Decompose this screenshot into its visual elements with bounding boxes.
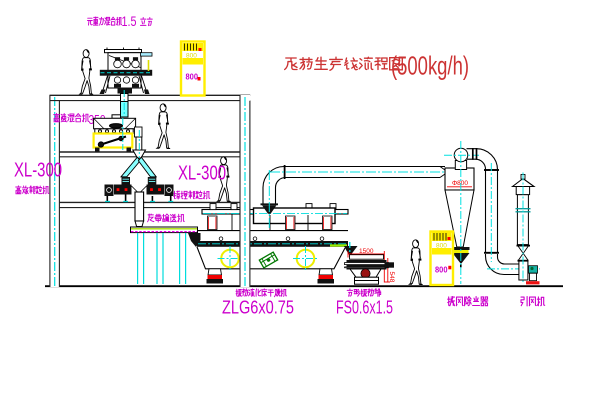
svg-text:ZLG6x0.75: ZLG6x0.75 <box>222 298 294 318</box>
svg-text:800: 800 <box>186 72 199 82</box>
svg-text:548: 548 <box>388 272 395 283</box>
svg-text:XL-300: XL-300 <box>178 163 226 185</box>
svg-text:(500kg/h): (500kg/h) <box>391 51 469 81</box>
svg-text:1.5: 1.5 <box>122 13 137 29</box>
svg-text:FS0.6x1.5: FS0.6x1.5 <box>336 298 393 318</box>
svg-text:800: 800 <box>435 265 448 275</box>
svg-text:Φ800: Φ800 <box>452 180 468 187</box>
svg-text:XL-300: XL-300 <box>14 160 62 182</box>
svg-text:1500: 1500 <box>359 248 374 255</box>
